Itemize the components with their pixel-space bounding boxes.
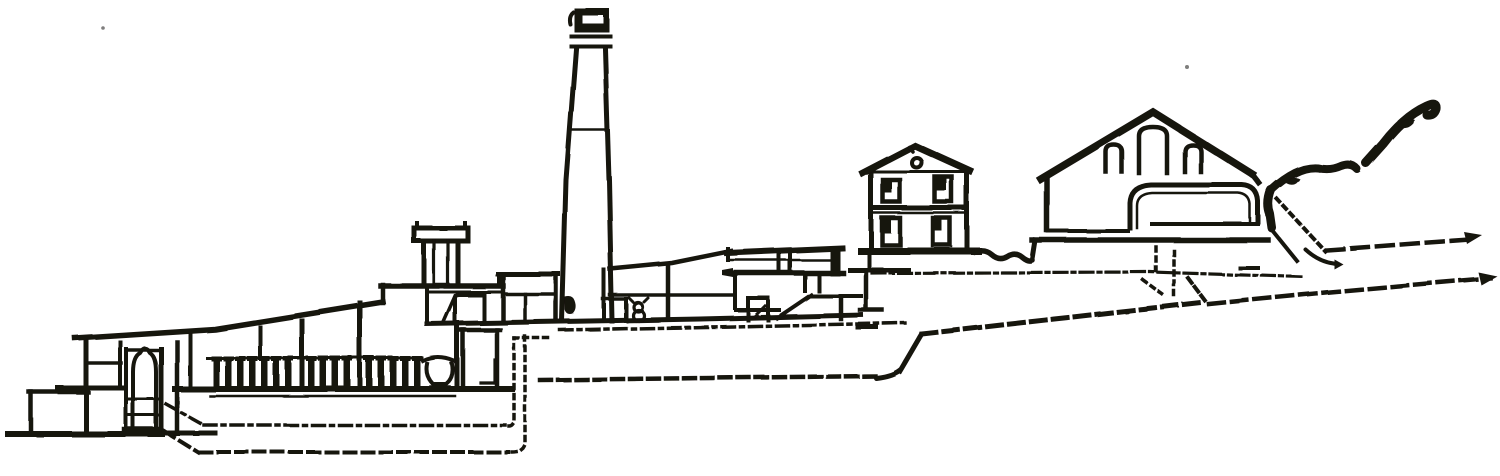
- underground-flue-mid: [540, 335, 921, 380]
- stack-side-bracket: [565, 297, 576, 315]
- slope-hatches: [1272, 199, 1343, 269]
- gable-ornament: [912, 158, 922, 168]
- print-specks: [101, 26, 1189, 69]
- vault-annex: [1130, 185, 1272, 268]
- terrace-lean-to: [603, 251, 733, 321]
- engraving-canvas: Sectional elevation engraving of a terra…: [0, 0, 1500, 476]
- small-chimney: [414, 223, 468, 286]
- collecting-pot: [423, 358, 454, 388]
- gallery-pillar: [830, 247, 840, 276]
- condenser-columns: [207, 356, 423, 386]
- figure-eight-mark: [629, 298, 648, 321]
- engraving-svg: Sectional elevation engraving of a terra…: [0, 0, 1500, 476]
- flue-chamber: [381, 286, 503, 323]
- furnace-box: [459, 330, 500, 388]
- two-story-house: [861, 146, 978, 251]
- hillside: [1270, 104, 1436, 191]
- large-workshop: [1032, 112, 1268, 240]
- ground-bumps: [974, 240, 1035, 261]
- workshop-roof: [1041, 112, 1252, 179]
- house-windows: [882, 177, 952, 245]
- left-machine-house: [86, 334, 190, 433]
- elevated-gallery: [722, 247, 861, 320]
- annex-end-wall: [1268, 190, 1272, 228]
- shed-roofline: [75, 285, 383, 338]
